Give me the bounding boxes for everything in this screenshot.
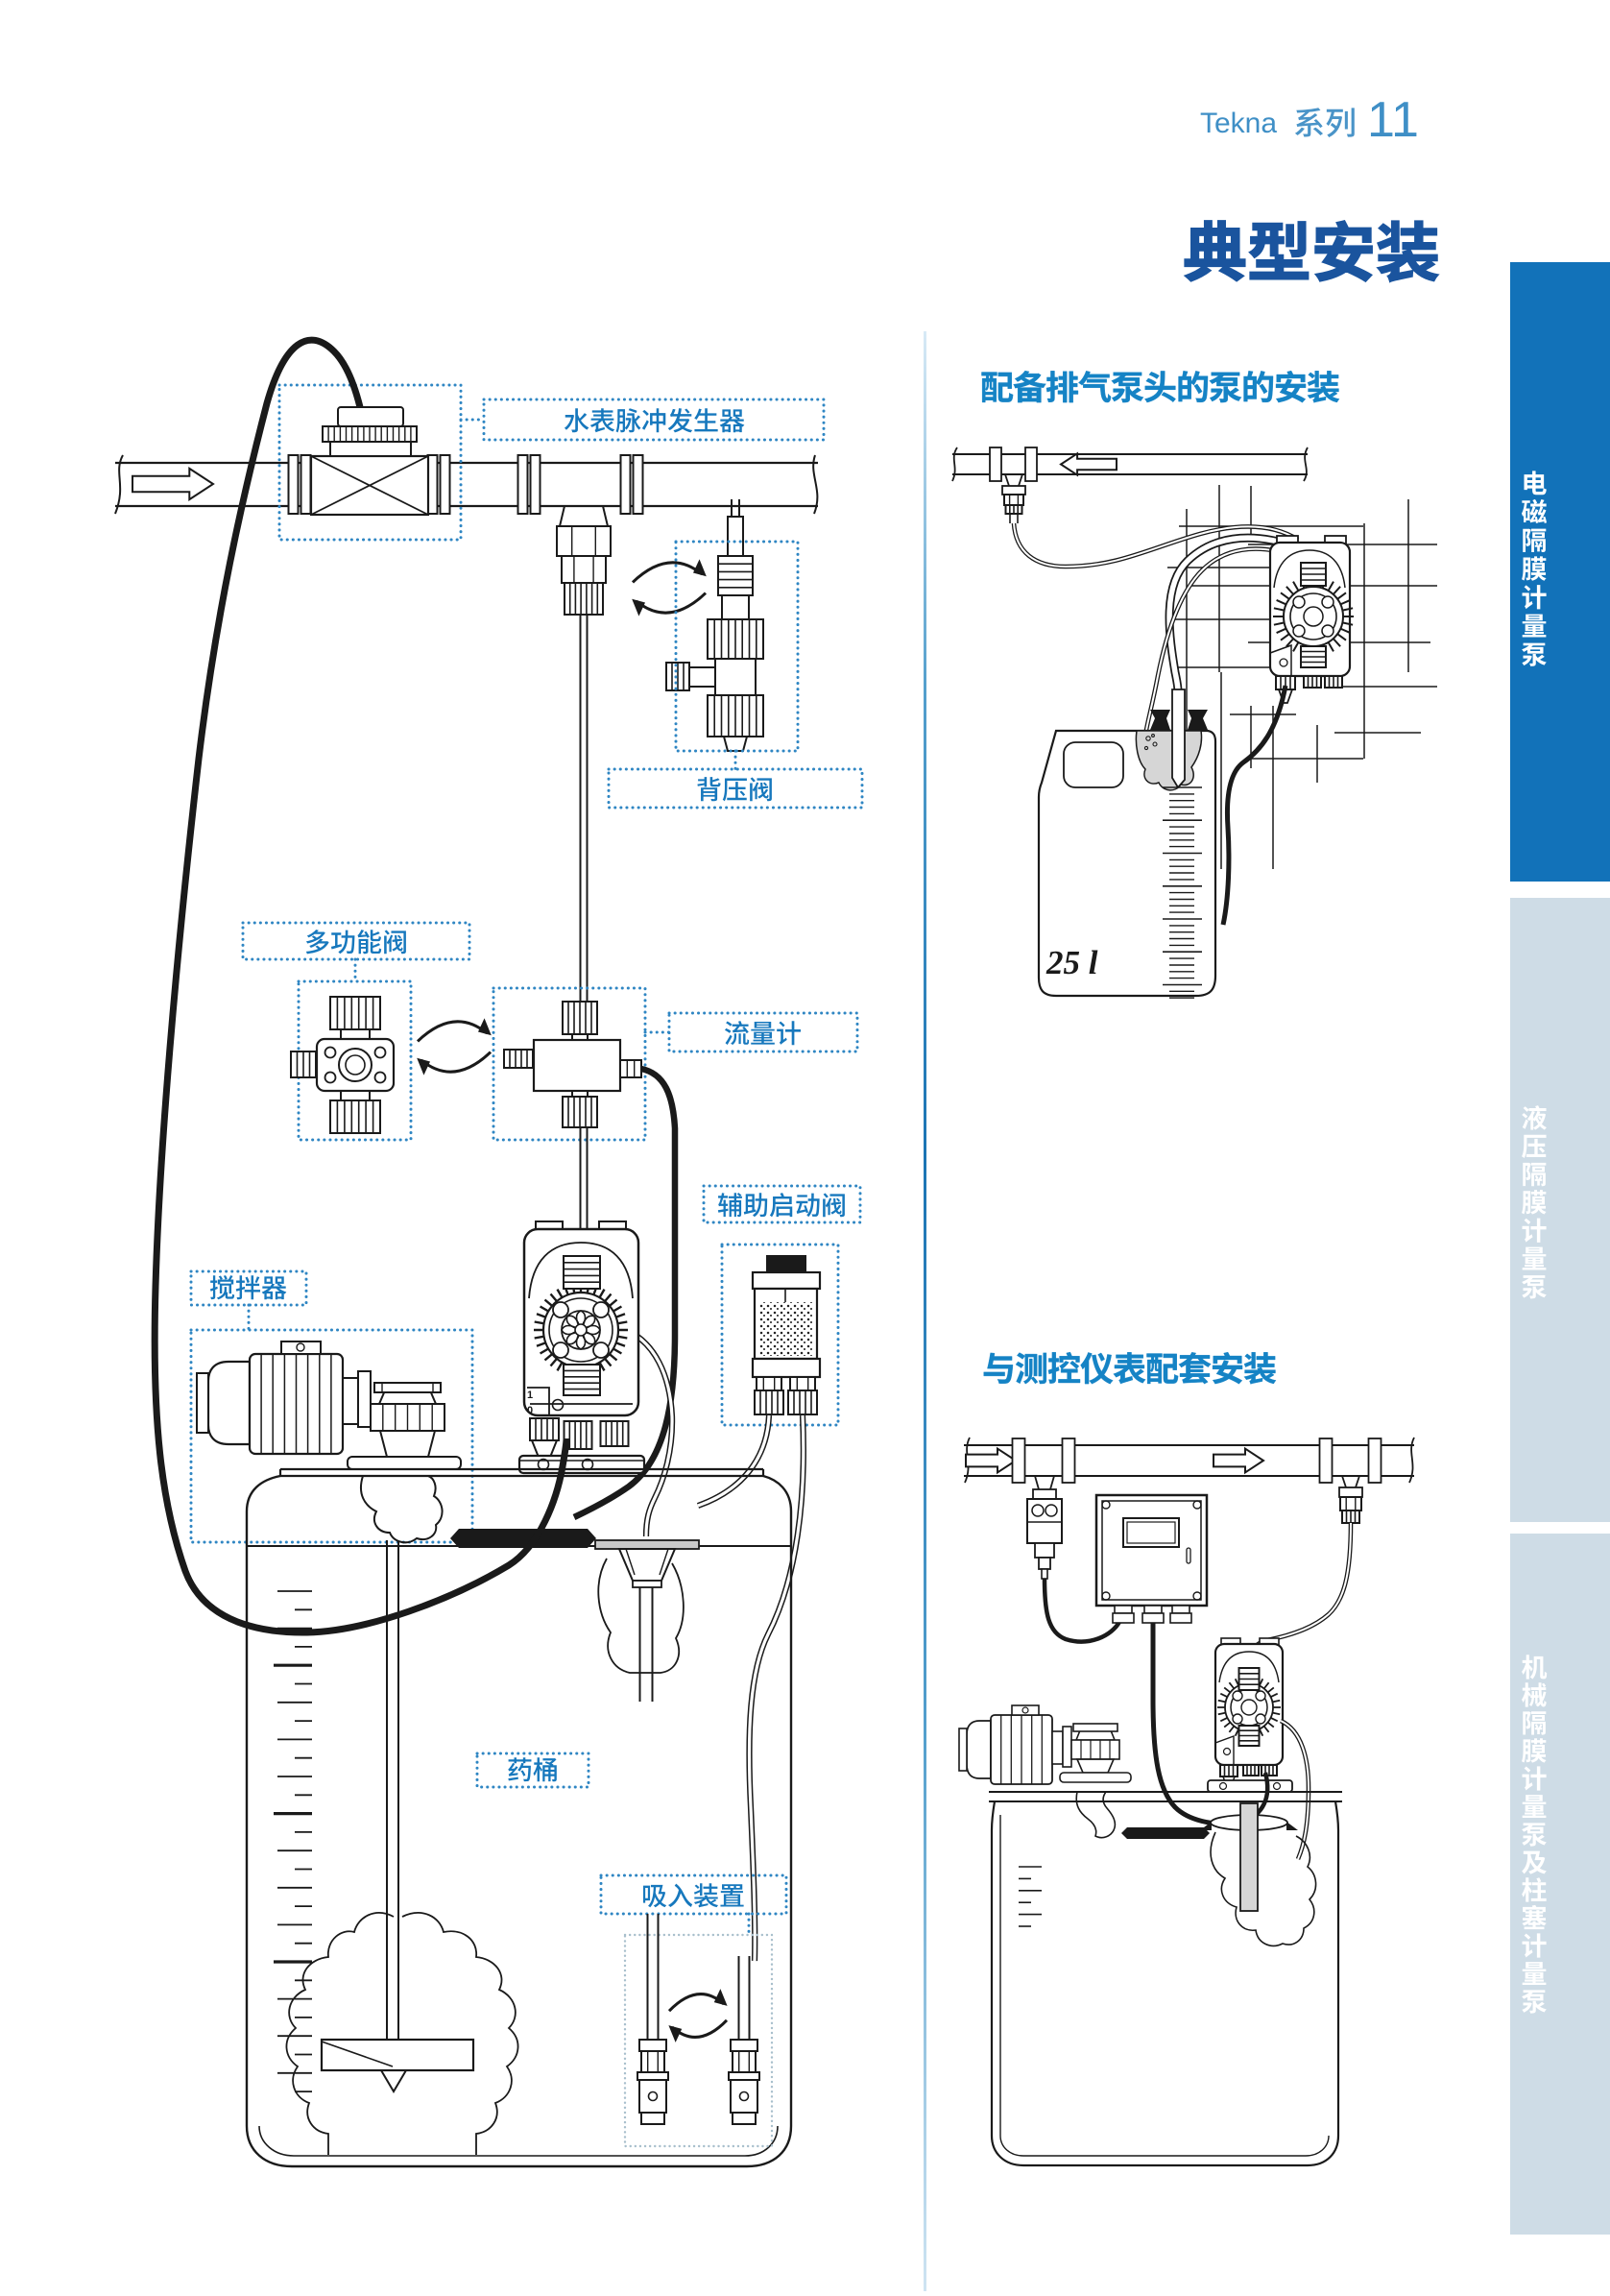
svg-text:11: 11 — [1367, 92, 1419, 148]
svg-text:0: 0 — [527, 1405, 533, 1416]
svg-text:Tekna: Tekna — [1200, 108, 1277, 139]
svg-text:1: 1 — [527, 1390, 533, 1401]
svg-text:25 l: 25 l — [1045, 944, 1098, 981]
